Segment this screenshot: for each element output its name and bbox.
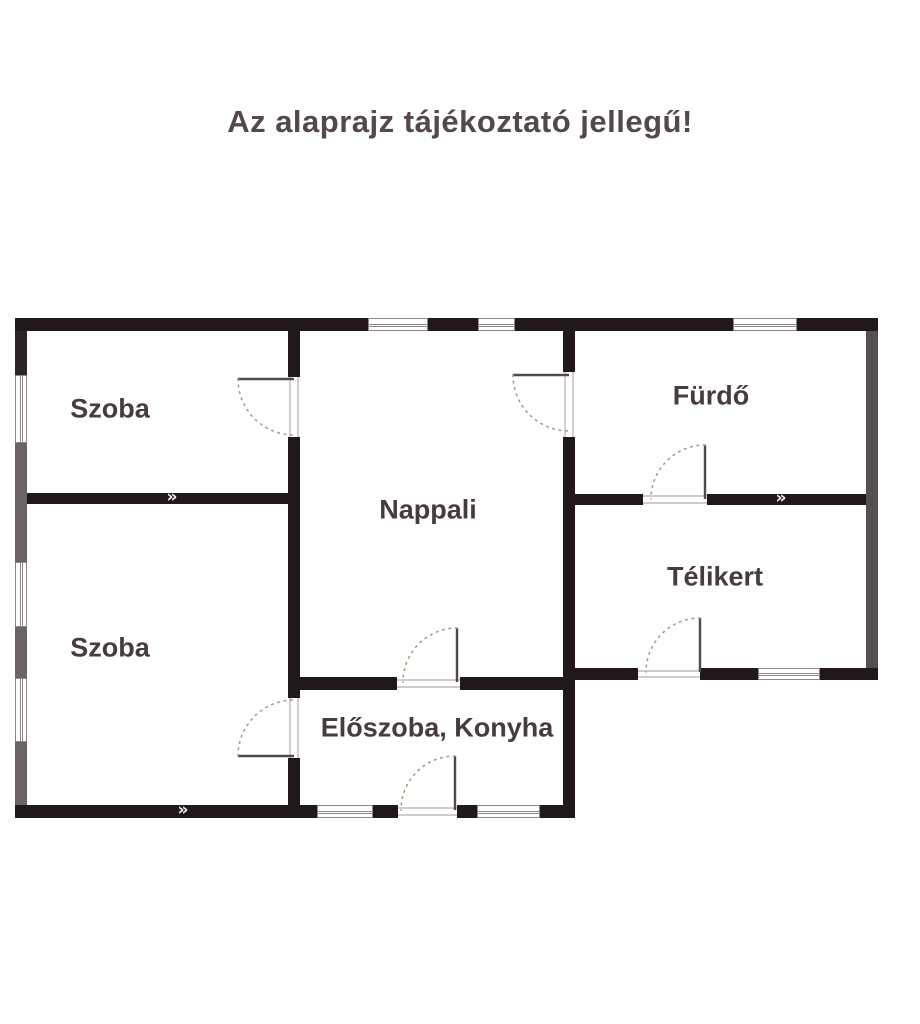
- wall-furdo-telikert-segment: [707, 494, 866, 505]
- wall-left-segment: [15, 443, 27, 562]
- wall-bottom-segment: [540, 805, 575, 818]
- window-left-3: [15, 678, 27, 742]
- wall-nappali-eloszoba-segment: [460, 677, 563, 690]
- wall-telikert-bottom-segment: [575, 668, 638, 680]
- wall-bottom-segment: [15, 805, 317, 818]
- wall-telikert-bottom-segment: [700, 668, 758, 680]
- wall-telikert-bottom-segment: [820, 668, 878, 680]
- wall-top-segment: [797, 318, 878, 331]
- disclaimer-title: Az alaprajz tájékoztató jellegű!: [227, 104, 693, 140]
- wall-left-segment: [15, 742, 27, 805]
- window-left-2: [15, 562, 27, 627]
- wall-chevron-icon: »: [167, 489, 176, 506]
- wall-chevron-icon: »: [178, 802, 187, 819]
- wall-top-segment: [15, 318, 368, 331]
- wall-szoba-divider-segment: [288, 758, 300, 805]
- door-telikert-exterior: [638, 618, 700, 677]
- door-szoba-bottom: [238, 698, 298, 758]
- room-label-telikert: Télikert: [667, 562, 763, 593]
- wall-chevron-icon: »: [776, 490, 785, 507]
- window-top-3: [733, 318, 797, 331]
- room-label-furdo: Fürdő: [673, 381, 749, 412]
- wall-szoba-szoba-divider: [27, 493, 288, 504]
- wall-szoba-divider-segment: [288, 331, 300, 377]
- wall-top-segment: [515, 318, 733, 331]
- door-szoba-top: [238, 377, 298, 437]
- wall-bottom-segment: [373, 805, 398, 818]
- room-label-nappali: Nappali: [379, 495, 477, 526]
- wall-nappali-eloszoba-segment: [300, 677, 397, 690]
- room-label-szoba-bottom: Szoba: [70, 633, 150, 664]
- door-eloszoba-exterior: [398, 756, 457, 815]
- wall-left-segment: [15, 331, 27, 375]
- room-label-eloszoba-konyha: Előszoba, Konyha: [321, 713, 554, 744]
- room-label-szoba-top: Szoba: [70, 394, 150, 425]
- wall-furdo-telikert-segment: [575, 494, 643, 505]
- wall-right: [866, 331, 878, 668]
- wall-nappali-divider-segment: [563, 331, 575, 372]
- window-bottom-2: [477, 805, 540, 818]
- floor-plan-page: Az alaprajz tájékoztató jellegű!: [0, 0, 920, 1024]
- wall-szoba-divider-segment: [288, 437, 300, 698]
- door-nappali-eloszoba: [397, 628, 460, 687]
- door-nappali-furdo: [513, 372, 573, 437]
- wall-bottom-segment: [457, 805, 477, 818]
- door-furdo-telikert: [643, 445, 707, 503]
- window-bottom-1: [317, 805, 373, 818]
- window-top-1: [368, 318, 428, 331]
- window-telikert: [758, 668, 820, 680]
- wall-nappali-divider-segment: [563, 437, 575, 805]
- window-left-1: [15, 375, 27, 443]
- wall-top-segment: [428, 318, 478, 331]
- window-top-2: [478, 318, 515, 331]
- wall-left-segment: [15, 627, 27, 678]
